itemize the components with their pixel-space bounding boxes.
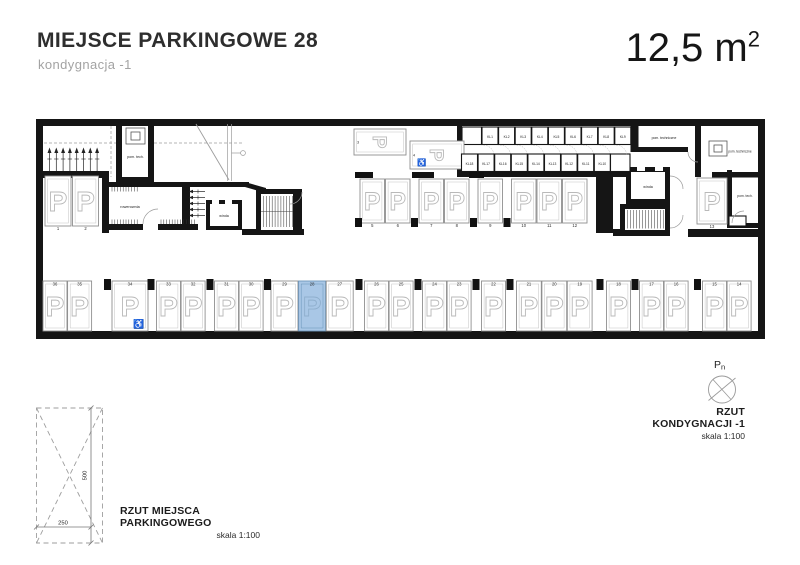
svg-text:KL4: KL4 [537,135,543,139]
column-mark [415,279,422,290]
svg-text:P: P [642,291,661,322]
parking-space-15[interactable]: P15 [703,281,727,331]
parking-space-13[interactable]: P13 [697,178,727,229]
svg-text:13: 13 [710,224,715,229]
north-arrow-icon: Pn [709,359,736,403]
parking-space-9[interactable]: P9 [478,179,503,228]
svg-text:KL11: KL11 [582,162,590,166]
locker-door-arc [600,145,611,154]
bike-rack-icon [189,196,205,200]
svg-text:P: P [368,136,389,149]
svg-text:P: P [49,186,68,217]
svg-text:P: P [46,291,65,322]
svg-text:P: P [390,189,406,216]
parking-space-33[interactable]: P33 [157,281,181,331]
svg-text:19: 19 [577,282,582,287]
wheelchair-icon: ♿ [417,158,426,167]
parking-space-12[interactable]: P12 [563,179,588,228]
svg-text:P: P [242,291,261,322]
parking-space-11[interactable]: P11 [537,179,562,228]
svg-text:28: 28 [310,282,315,287]
svg-text:27: 27 [337,282,342,287]
svg-text:KL12: KL12 [565,162,573,166]
svg-text:26: 26 [374,282,379,287]
parking-space-16[interactable]: P16 [664,281,688,331]
svg-text:KL2: KL2 [504,135,510,139]
parking-space-36[interactable]: P36 [43,281,67,331]
svg-text:35: 35 [77,282,82,287]
column-mark [148,279,155,290]
svg-text:P: P [364,189,380,216]
svg-text:P: P [482,189,498,216]
svg-text:10: 10 [521,223,526,228]
locker-door-arc [484,145,495,154]
svg-text:KL17: KL17 [482,162,490,166]
parking-space-32[interactable]: P32 [181,281,205,331]
svg-text:P: P [303,291,322,322]
detail-caption: RZUT MIEJSCA PARKINGOWEGO skala 1:100 [120,505,260,540]
column-mark [411,218,418,227]
svg-text:36: 36 [53,282,58,287]
svg-text:P: P [703,188,720,216]
svg-text:32: 32 [191,282,196,287]
parking-space-18[interactable]: P18 [607,281,631,331]
room-label-pom-techniczne-a: pom. techniczne [652,136,677,140]
parking-space-7[interactable]: P7 [419,179,444,228]
svg-text:KL5: KL5 [553,135,559,139]
parking-space-26[interactable]: P26 [365,281,389,331]
room-label-pom-tech-left: pom. tech. [127,155,144,159]
svg-text:KL18: KL18 [466,162,474,166]
parking-space-20[interactable]: P20 [542,281,567,331]
parking-space-5[interactable]: P5 [360,179,385,228]
svg-text:P: P [705,291,724,322]
column-mark [264,279,271,290]
floor-plan: pom. tech. rowerownia winda pom. technic… [0,0,800,565]
column-mark [104,279,111,290]
svg-text:17: 17 [649,282,654,287]
svg-text:KL15: KL15 [515,162,523,166]
svg-text:29: 29 [282,282,287,287]
locker-door-arc [517,145,528,154]
locker-door-arc [533,145,544,154]
svg-text:P: P [121,291,140,322]
parking-space-29[interactable]: P29 [271,281,298,331]
bike-rack-icon [68,148,72,172]
svg-text:20: 20 [552,282,557,287]
parking-space-14[interactable]: P14 [727,281,751,331]
bike-rack-icon [47,148,51,172]
svg-text:KL1: KL1 [487,135,493,139]
bike-rack-icon [189,202,205,206]
svg-text:2: 2 [84,226,87,231]
svg-text:P: P [450,291,469,322]
svg-text:KL7: KL7 [587,135,593,139]
locker-door-arc [616,145,627,154]
bike-rack-icon [189,208,205,212]
column-mark [207,279,214,290]
svg-text:KL16: KL16 [499,162,507,166]
svg-text:KL6: KL6 [570,135,576,139]
svg-text:P: P [730,291,749,322]
svg-text:31: 31 [224,282,229,287]
parking-space-21[interactable]: P21 [517,281,542,331]
svg-text:KL8: KL8 [603,135,609,139]
column-mark [694,279,701,290]
north-label-main: P [714,359,721,371]
wall-stub [412,172,434,178]
svg-text:P: P [330,291,349,322]
svg-text:P: P [392,291,411,322]
room-label-rowerownia: rowerownia [120,205,140,209]
svg-text:P: P [516,189,532,216]
svg-text:P: P [425,149,446,162]
svg-text:5: 5 [371,223,374,228]
detail-caption-title: RZUT MIEJSCA PARKINGOWEGO [120,505,260,529]
parking-card-page: MIEJSCE PARKINGOWE 28 kondygnacja -1 12,… [0,0,800,565]
bike-rack-icon [61,148,65,172]
svg-text:23: 23 [457,282,462,287]
parking-space-31[interactable]: P31 [215,281,239,331]
plan-caption-title: RZUT KONDYGNACJI -1 [641,406,745,430]
parking-space-17[interactable]: P17 [640,281,664,331]
room-label-winda-left: winda [219,214,228,218]
svg-text:P: P [425,291,444,322]
svg-text:15: 15 [712,282,717,287]
svg-text:3: 3 [357,141,359,145]
svg-text:14: 14 [737,282,742,287]
north-label-sub: n [721,363,725,372]
parking-space-1[interactable]: P1 [45,176,71,231]
svg-text:24: 24 [432,282,437,287]
svg-text:12: 12 [572,223,577,228]
svg-text:1: 1 [57,226,60,231]
svg-text:11: 11 [547,223,552,228]
svg-text:6: 6 [397,223,400,228]
svg-text:P: P [609,291,628,322]
north-label: Pn [714,359,725,372]
parking-space-25[interactable]: P25 [389,281,413,331]
bike-rack-icon [88,148,92,172]
svg-text:P: P [70,291,89,322]
plan-caption-scale: skala 1:100 [641,431,745,441]
column-mark [355,218,362,227]
bike-rack-icon [189,214,205,218]
column-mark [473,279,480,290]
locker-door-arc [583,145,594,154]
svg-text:P: P [520,291,539,322]
parking-space-30[interactable]: P30 [239,281,263,331]
detail-caption-scale: skala 1:100 [120,530,260,540]
wall-stub [355,172,373,178]
column-mark [504,218,511,227]
svg-text:KL3: KL3 [520,135,526,139]
bike-rack-icon [189,190,205,194]
column-mark [356,279,363,290]
svg-text:9: 9 [489,223,492,228]
svg-text:P: P [423,189,439,216]
svg-text:16: 16 [674,282,679,287]
svg-text:P: P [367,291,386,322]
parking-space-27[interactable]: P27 [326,281,353,331]
parking-space-8[interactable]: P8 [445,179,470,228]
parking-space-4[interactable]: P♿ [410,141,464,169]
parking-space-2[interactable]: P2 [73,176,99,231]
parking-space-34[interactable]: P34♿ [112,281,148,331]
svg-text:4: 4 [413,154,415,158]
svg-text:P: P [567,189,583,216]
detail-height-dimension: 500 [83,471,89,481]
parking-space-3[interactable]: P [354,129,406,155]
locker-door-arc [567,145,578,154]
svg-text:33: 33 [166,282,171,287]
parking-space-detail-drawing: 500 250 [34,406,103,546]
room-label-pom-tech-right: pom. tech. [737,194,752,198]
bike-rack-icon [95,148,99,172]
bike-rack-icon [54,148,58,172]
svg-text:P: P [159,291,178,322]
parking-space-23[interactable]: P23 [447,281,471,331]
svg-text:KL13: KL13 [549,162,557,166]
column-mark [597,279,604,290]
svg-text:P: P [667,291,686,322]
plan-caption: RZUT KONDYGNACJI -1 skala 1:100 [641,406,745,441]
svg-text:22: 22 [491,282,496,287]
svg-text:7: 7 [430,223,433,228]
room-label-pom-techniczne-b: pom. techniczne [728,150,751,154]
parking-space-24[interactable]: P24 [423,281,447,331]
room-label-winda-right: winda [643,185,652,189]
locker-door-arc [550,145,561,154]
svg-text:P: P [545,291,564,322]
svg-text:P: P [449,189,465,216]
svg-text:P: P [570,291,589,322]
wall-stub [469,172,484,178]
locker-door-arc [500,145,511,154]
svg-text:P: P [541,189,557,216]
wheelchair-icon: ♿ [133,318,144,329]
svg-text:P: P [184,291,203,322]
column-mark [507,279,514,290]
column-mark [470,218,477,227]
svg-text:P: P [275,291,294,322]
parking-space-10[interactable]: P10 [512,179,537,228]
svg-text:8: 8 [456,223,459,228]
svg-text:P: P [217,291,236,322]
parking-space-19[interactable]: P19 [567,281,592,331]
svg-text:P: P [76,186,95,217]
svg-text:30: 30 [249,282,254,287]
svg-text:25: 25 [399,282,404,287]
svg-text:21: 21 [527,282,532,287]
parking-space-6[interactable]: P6 [386,179,411,228]
bike-rack-icon [75,148,79,172]
svg-text:KL9: KL9 [620,135,626,139]
svg-text:KL14: KL14 [532,162,540,166]
column-mark [632,279,639,290]
svg-text:18: 18 [616,282,621,287]
parking-space-22[interactable]: P22 [482,281,506,331]
svg-text:KL10: KL10 [598,162,606,166]
svg-text:34: 34 [128,282,133,287]
bike-rack-icon [81,148,85,172]
detail-width-dimension: 250 [58,521,68,527]
parking-space-35[interactable]: P35 [68,281,92,331]
parking-space-28[interactable]: P28 [299,281,326,331]
svg-text:P: P [484,291,503,322]
